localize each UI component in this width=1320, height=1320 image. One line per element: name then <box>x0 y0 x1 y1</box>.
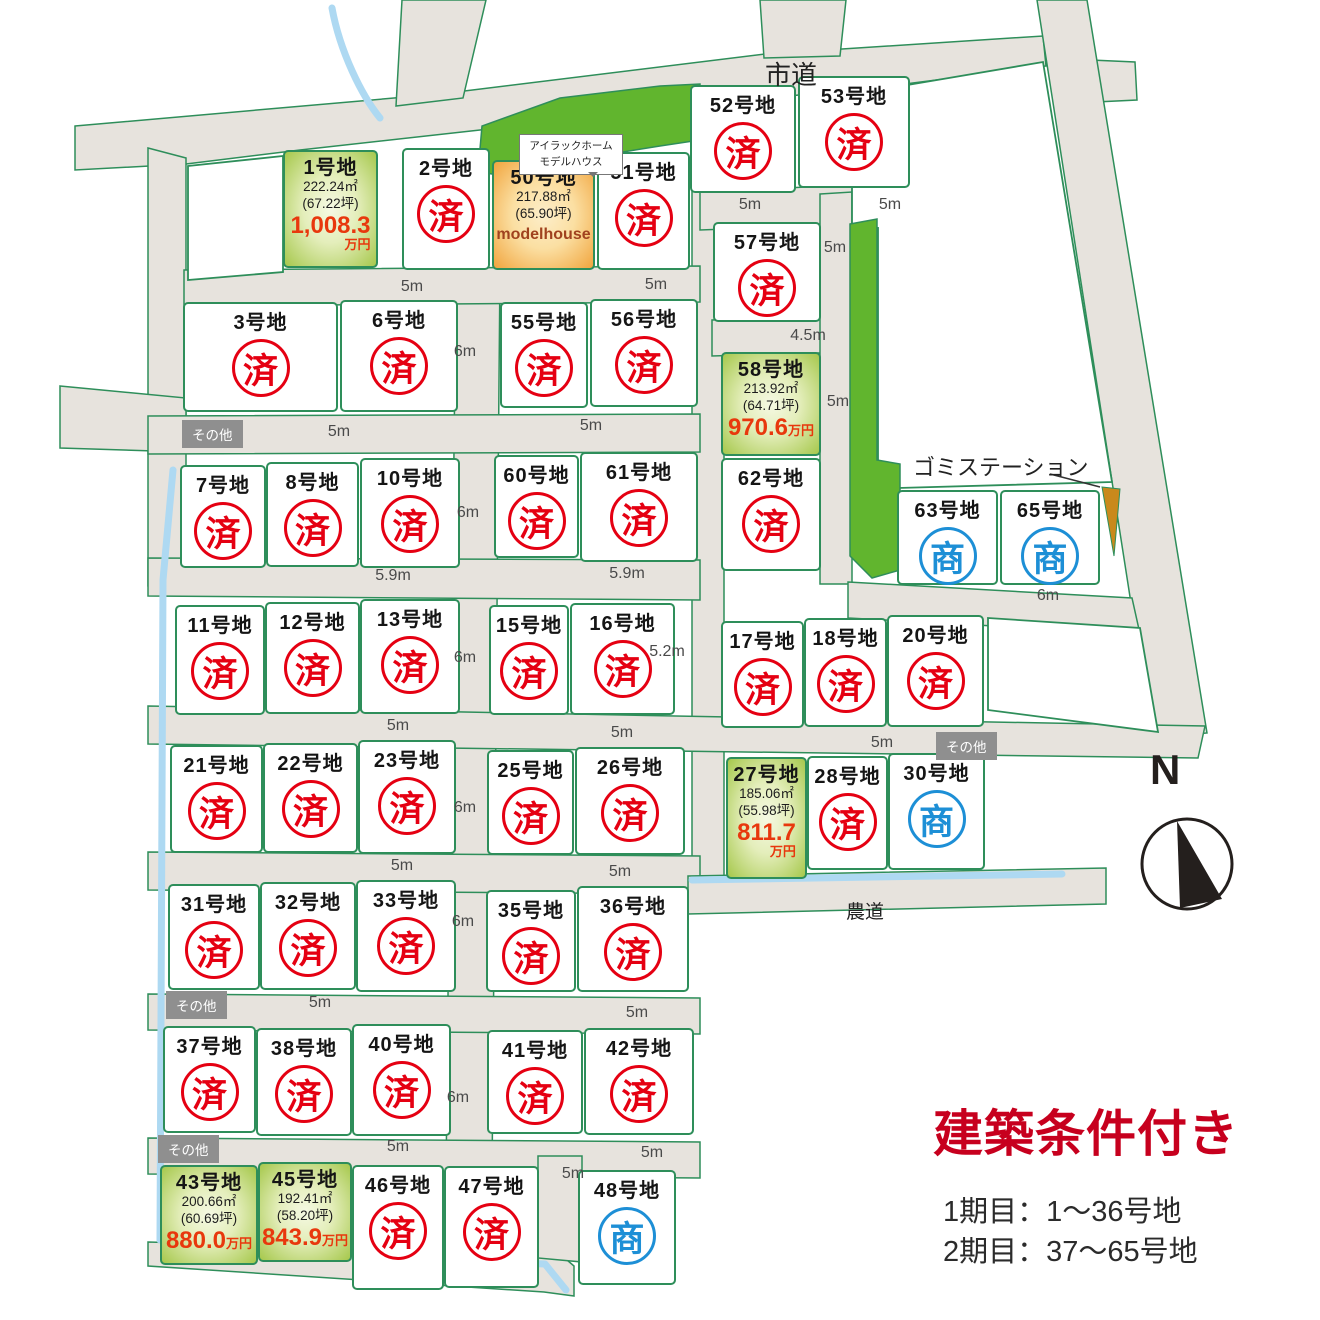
lot-price-row: 811.7万円 <box>737 821 796 858</box>
commercial-mark-icon: 商 <box>598 1207 656 1265</box>
sold-mark-icon: 済 <box>232 339 290 397</box>
sold-mark-icon: 済 <box>506 1067 564 1125</box>
lot-price-row: 970.6万円 <box>728 416 814 440</box>
lot-number-label: 30号地 <box>903 763 969 785</box>
lot-number-label: 40号地 <box>368 1034 434 1056</box>
sold-mark-icon: 済 <box>381 495 439 553</box>
lot-area: 185.06㎡ <box>739 786 794 803</box>
lot-13: 13号地 済 <box>360 599 460 714</box>
lot-number-label: 26号地 <box>597 757 663 779</box>
sold-mark-icon: 済 <box>282 780 340 838</box>
lot-45: 45号地 192.41㎡ (58.20坪) 843.9万円 <box>258 1162 352 1262</box>
lot-50: 50号地 217.88㎡ (65.90坪) modelhouse <box>492 160 595 270</box>
sold-mark-icon: 済 <box>463 1203 521 1261</box>
sold-mark-icon: 済 <box>502 927 560 985</box>
lot-58: 58号地 213.92㎡ (64.71坪) 970.6万円 <box>721 352 821 456</box>
lot-number-label: 22号地 <box>277 753 343 775</box>
lot-number-label: 2号地 <box>419 158 473 180</box>
sold-mark-icon: 済 <box>604 923 662 981</box>
lot-tsubo: (64.71坪) <box>743 398 799 415</box>
lot-52: 52号地 済 <box>690 85 796 193</box>
sold-mark-icon: 済 <box>188 782 246 840</box>
lot-price: 970.6 <box>728 414 788 441</box>
lot-number-label: 8号地 <box>285 472 339 494</box>
sold-mark-icon: 済 <box>508 492 566 550</box>
lot-area: 192.41㎡ <box>278 1191 333 1208</box>
lot-38: 38号地 済 <box>256 1028 352 1136</box>
sold-mark-icon: 済 <box>275 1065 333 1123</box>
lot-23: 23号地 済 <box>358 740 456 854</box>
lot-2: 2号地 済 <box>402 148 490 270</box>
lot-63: 63号地 商 <box>897 490 998 585</box>
lot-35: 35号地 済 <box>486 890 576 992</box>
lot-number-label: 16号地 <box>589 613 655 635</box>
sold-mark-icon: 済 <box>615 336 673 394</box>
sold-mark-icon: 済 <box>377 917 435 975</box>
lot-number-label: 35号地 <box>498 900 564 922</box>
lot-46: 46号地 済 <box>352 1165 444 1290</box>
lot-number-label: 61号地 <box>606 462 672 484</box>
lot-number-label: 21号地 <box>183 755 249 777</box>
lot-56: 56号地 済 <box>590 299 698 407</box>
lot-number-label: 37号地 <box>176 1036 242 1058</box>
sold-mark-icon: 済 <box>817 655 875 713</box>
lot-number-label: 25号地 <box>497 760 563 782</box>
sold-mark-icon: 済 <box>417 185 475 243</box>
lot-number-label: 10号地 <box>377 468 443 490</box>
lot-number-label: 60号地 <box>503 465 569 487</box>
lot-number-label: 47号地 <box>458 1176 524 1198</box>
sold-mark-icon: 済 <box>515 339 573 397</box>
lot-8: 8号地 済 <box>266 462 359 567</box>
lot-41: 41号地 済 <box>487 1030 583 1134</box>
lot-price-unit: 万円 <box>322 1233 348 1248</box>
lot-21: 21号地 済 <box>170 745 263 853</box>
lot-number-label: 62号地 <box>738 468 804 490</box>
lot-10: 10号地 済 <box>360 458 460 568</box>
lot-number-label: 11号地 <box>187 615 252 637</box>
lot-57: 57号地 済 <box>713 222 821 322</box>
lot-27: 27号地 185.06㎡ (55.98坪) 811.7万円 <box>726 757 807 879</box>
lot-area: 217.88㎡ <box>516 189 571 206</box>
sold-mark-icon: 済 <box>615 189 673 247</box>
lot-number-label: 42号地 <box>606 1038 672 1060</box>
lot-20: 20号地 済 <box>887 615 984 727</box>
lot-number-label: 57号地 <box>734 232 800 254</box>
sold-mark-icon: 済 <box>738 259 796 317</box>
lot-price-row: 880.0万円 <box>166 1229 252 1253</box>
sold-mark-icon: 済 <box>369 1202 427 1260</box>
lot-number-label: 32号地 <box>275 892 341 914</box>
lot-area: 213.92㎡ <box>744 381 799 398</box>
lot-price: 1,008.3 <box>290 214 370 238</box>
lot-price-unit: 万円 <box>770 845 796 858</box>
sold-mark-icon: 済 <box>381 636 439 694</box>
lot-tsubo: (55.98坪) <box>738 803 794 820</box>
lot-price-row: 843.9万円 <box>262 1226 348 1250</box>
sold-mark-icon: 済 <box>825 113 883 171</box>
lot-48: 48号地 商 <box>578 1170 676 1285</box>
sold-mark-icon: 済 <box>194 502 252 560</box>
lot-tsubo: (67.22坪) <box>302 196 358 213</box>
lot-25: 25号地 済 <box>487 750 574 855</box>
lot-area: 222.24㎡ <box>303 179 358 196</box>
lot-1: 1号地 222.24㎡ (67.22坪) 1,008.3万円 <box>283 150 378 268</box>
sold-mark-icon: 済 <box>502 787 560 845</box>
lot-tsubo: (60.69坪) <box>181 1211 237 1228</box>
sold-mark-icon: 済 <box>714 122 772 180</box>
lot-price-unit: 万円 <box>788 423 814 438</box>
lot-price-unit: 万円 <box>345 238 371 251</box>
lot-number-label: 55号地 <box>511 312 577 334</box>
lot-number-label: 31号地 <box>181 894 247 916</box>
lot-number-label: 56号地 <box>611 309 677 331</box>
lot-number-label: 65号地 <box>1017 500 1083 522</box>
sold-mark-icon: 済 <box>907 652 965 710</box>
lot-65: 65号地 商 <box>1000 490 1100 585</box>
lot-16: 16号地 済 <box>570 603 675 715</box>
lot-40: 40号地 済 <box>352 1024 451 1136</box>
lot-price: 811.7 <box>737 821 796 845</box>
lot-62: 62号地 済 <box>721 458 821 571</box>
lot-number-label: 48号地 <box>594 1180 660 1202</box>
lot-36: 36号地 済 <box>577 886 689 992</box>
sold-mark-icon: 済 <box>191 642 249 700</box>
lot-30: 30号地 商 <box>888 753 985 870</box>
lot-number-label: 27号地 <box>733 764 799 786</box>
lot-price: 843.9 <box>262 1224 322 1251</box>
sold-mark-icon: 済 <box>284 639 342 697</box>
lot-area: 200.66㎡ <box>182 1194 237 1211</box>
sold-mark-icon: 済 <box>734 658 792 716</box>
lot-number-label: 12号地 <box>279 612 345 634</box>
commercial-mark-icon: 商 <box>908 790 966 848</box>
lot-3: 3号地 済 <box>183 302 338 412</box>
lot-53: 53号地 済 <box>798 76 910 188</box>
lot-7: 7号地 済 <box>180 465 266 568</box>
sold-mark-icon: 済 <box>610 489 668 547</box>
lot-42: 42号地 済 <box>584 1028 694 1135</box>
lot-number-label: 6号地 <box>372 310 426 332</box>
land-lot-map: 1号地 222.24㎡ (67.22坪) 1,008.3万円 2号地 済 50号… <box>0 0 1320 1320</box>
lot-61: 61号地 済 <box>580 452 698 562</box>
commercial-mark-icon: 商 <box>919 527 977 585</box>
modelhouse-tooltip: アイラックホーム モデルハウス <box>519 134 623 175</box>
lot-11: 11号地 済 <box>175 605 265 715</box>
lot-number-label: 53号地 <box>821 86 887 108</box>
lot-6: 6号地 済 <box>340 300 458 412</box>
lot-number-label: 18号地 <box>812 628 878 650</box>
sold-mark-icon: 済 <box>284 499 342 557</box>
lot-47: 47号地 済 <box>444 1166 539 1288</box>
lot-number-label: 46号地 <box>365 1175 431 1197</box>
lots-layer: 1号地 222.24㎡ (67.22坪) 1,008.3万円 2号地 済 50号… <box>0 0 1320 1320</box>
sold-mark-icon: 済 <box>601 784 659 842</box>
lot-number-label: 17号地 <box>729 631 795 653</box>
sold-mark-icon: 済 <box>370 337 428 395</box>
lot-number-label: 58号地 <box>738 359 804 381</box>
lot-number-label: 41号地 <box>502 1040 568 1062</box>
lot-number-label: 38号地 <box>271 1038 337 1060</box>
commercial-mark-icon: 商 <box>1021 527 1079 585</box>
sold-mark-icon: 済 <box>279 919 337 977</box>
lot-number-label: 45号地 <box>272 1169 338 1191</box>
sold-mark-icon: 済 <box>185 921 243 979</box>
sold-mark-icon: 済 <box>742 495 800 553</box>
lot-33: 33号地 済 <box>356 880 456 992</box>
lot-60: 60号地 済 <box>494 455 579 558</box>
lot-number-label: 63号地 <box>914 500 980 522</box>
lot-tsubo: (58.20坪) <box>277 1208 333 1225</box>
lot-31: 31号地 済 <box>168 884 260 990</box>
lot-37: 37号地 済 <box>163 1026 256 1133</box>
lot-32: 32号地 済 <box>260 882 356 990</box>
lot-number-label: 3号地 <box>233 312 287 334</box>
sold-mark-icon: 済 <box>610 1065 668 1123</box>
lot-number-label: 43号地 <box>176 1172 242 1194</box>
sold-mark-icon: 済 <box>181 1063 239 1121</box>
lot-43: 43号地 200.66㎡ (60.69坪) 880.0万円 <box>160 1165 258 1265</box>
sold-mark-icon: 済 <box>594 640 652 698</box>
sold-mark-icon: 済 <box>819 793 877 851</box>
lot-17: 17号地 済 <box>721 621 804 728</box>
lot-28: 28号地 済 <box>807 756 888 870</box>
lot-number-label: 36号地 <box>600 896 666 918</box>
sold-mark-icon: 済 <box>378 777 436 835</box>
lot-price-row: 1,008.3万円 <box>290 214 370 251</box>
tooltip-line2: モデルハウス <box>522 154 620 170</box>
lot-18: 18号地 済 <box>804 618 887 727</box>
lot-26: 26号地 済 <box>575 747 685 855</box>
lot-price-unit: 万円 <box>226 1236 252 1251</box>
sold-mark-icon: 済 <box>373 1061 431 1119</box>
lot-number-label: 1号地 <box>303 157 357 179</box>
lot-22: 22号地 済 <box>263 743 358 853</box>
lot-number-label: 7号地 <box>196 475 250 497</box>
sold-mark-icon: 済 <box>500 642 558 700</box>
lot-number-label: 23号地 <box>374 750 440 772</box>
lot-number-label: 33号地 <box>373 890 439 912</box>
lot-number-label: 52号地 <box>710 95 776 117</box>
lot-number-label: 28号地 <box>814 766 880 788</box>
lot-number-label: 20号地 <box>902 625 968 647</box>
lot-55: 55号地 済 <box>500 302 588 408</box>
lot-note: modelhouse <box>496 226 590 244</box>
lot-number-label: 15号地 <box>496 615 562 637</box>
tooltip-line1: アイラックホーム <box>522 138 620 154</box>
lot-12: 12号地 済 <box>265 602 360 714</box>
lot-price: 880.0 <box>166 1227 226 1254</box>
lot-tsubo: (65.90坪) <box>515 206 571 223</box>
lot-number-label: 13号地 <box>377 609 443 631</box>
lot-15: 15号地 済 <box>489 605 569 715</box>
